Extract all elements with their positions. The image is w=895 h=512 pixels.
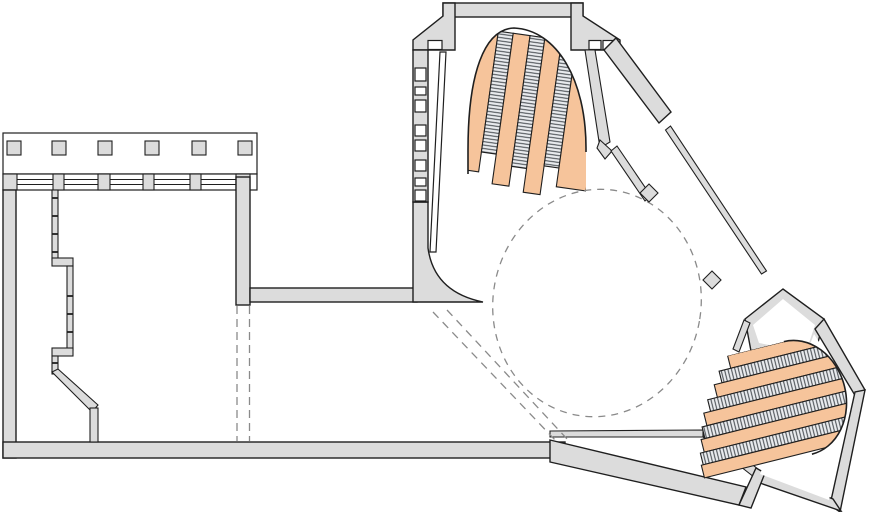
dashed-diagonal-guide (433, 312, 556, 441)
floor-plan-canvas (0, 0, 895, 512)
roof-band (3, 133, 257, 174)
roof-square (192, 141, 206, 155)
roof-square (52, 141, 66, 155)
jog-window (428, 41, 442, 50)
inner-thin-wall (430, 52, 446, 252)
rung-window (415, 160, 426, 171)
fork-upper-wall (550, 430, 703, 437)
facade-rung-wall (413, 50, 428, 202)
corner-diagonal-wall (52, 369, 98, 412)
rung-window (415, 140, 426, 151)
north-corridor (250, 202, 483, 302)
rung-window (415, 190, 426, 201)
rung-window (415, 68, 426, 81)
rung-window (415, 100, 426, 112)
stair-hall-east-wall (585, 50, 610, 148)
roof-square (7, 141, 21, 155)
dashed-diagonal-guide (447, 310, 568, 440)
concourse-markings (433, 173, 721, 441)
dashed-vertical-guides (237, 306, 250, 441)
stepped-inner-wall (52, 190, 98, 442)
escalator-bank-top (448, 27, 606, 201)
funnel-wall (413, 202, 483, 302)
jog-window (589, 41, 601, 50)
roof-square (98, 141, 112, 155)
diamond-column (703, 271, 721, 289)
rung-window (415, 87, 426, 95)
pentagon-to-stairs-wall (733, 320, 750, 352)
hall-right-wall (236, 177, 250, 305)
left-exterior-wall (3, 190, 16, 458)
floor-plan (0, 0, 895, 512)
bottom-exterior-wall (3, 442, 565, 458)
rung-window (415, 125, 426, 136)
roof-square (238, 141, 252, 155)
top-wall (443, 3, 583, 17)
rung-window (415, 178, 426, 186)
roof-square (145, 141, 159, 155)
gallery-walls (585, 38, 767, 274)
corridor-wall (250, 288, 417, 302)
wide-diagonal-wall (604, 38, 671, 123)
window-band (3, 174, 257, 190)
thin-gallery-wall (666, 126, 767, 274)
